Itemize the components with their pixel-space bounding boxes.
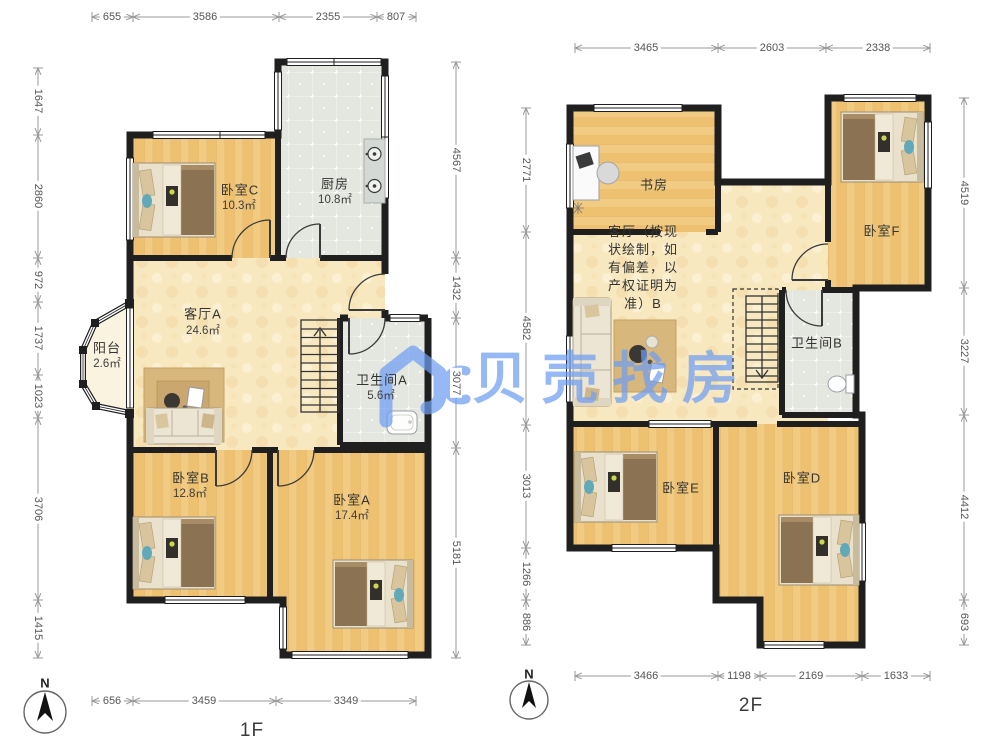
dim-label: 2338 bbox=[863, 42, 893, 54]
watermark-brand: 贝壳找房 bbox=[472, 351, 752, 407]
dim-label: 3706 bbox=[32, 494, 44, 524]
floor2-compass bbox=[510, 681, 548, 719]
room-label-bedroom-e: 卧室E bbox=[662, 478, 700, 497]
room-area-bedroom-c: 10.3㎡ bbox=[222, 197, 256, 213]
dim-label: 4582 bbox=[520, 313, 532, 343]
dim-label: 3586 bbox=[190, 11, 220, 23]
dim-label: 3349 bbox=[331, 695, 361, 707]
dim-label: 4567 bbox=[450, 145, 462, 175]
dim-label: 1432 bbox=[450, 273, 462, 303]
dim-label: 3077 bbox=[450, 368, 462, 398]
dim-label: 693 bbox=[958, 610, 970, 634]
room-label-bedroom-f: 卧室F bbox=[864, 221, 901, 240]
dim-label: 3013 bbox=[520, 471, 532, 501]
room-label-bedroom-c: 卧室C bbox=[221, 180, 259, 199]
bedroom-b-bed bbox=[133, 517, 215, 589]
kitchen-stove bbox=[364, 139, 385, 203]
dim-label: 807 bbox=[384, 11, 408, 23]
room-area-bedroom-b: 12.8㎡ bbox=[173, 485, 207, 501]
living-a-sofa bbox=[144, 368, 224, 444]
room-label-living-a: 客厅A bbox=[184, 304, 222, 323]
room-label-bedroom-a: 卧室A bbox=[333, 490, 371, 509]
bedroom-f-bed bbox=[841, 112, 923, 182]
dim-label: 1633 bbox=[881, 670, 911, 682]
floorplan-page: 贝壳找房 卧室C 10.3㎡ 厨房 10.8㎡ 客厅A 24.6㎡ 阳台 2.6… bbox=[0, 0, 1000, 750]
bedroom-c-bed bbox=[133, 163, 215, 237]
dim-label: 1023 bbox=[32, 381, 44, 411]
room-area-living-a: 24.6㎡ bbox=[186, 322, 220, 338]
room-label-study: 书房 bbox=[640, 175, 668, 194]
floor1-compass bbox=[24, 691, 66, 733]
room-label-living-b: 客厅（按现状绘制，如有偏差，以产权证明为准）B bbox=[602, 223, 684, 313]
room-area-kitchen: 10.8㎡ bbox=[318, 191, 352, 207]
dim-label: 4519 bbox=[958, 178, 970, 208]
room-label-balcony: 阳台 bbox=[93, 338, 121, 357]
room-label-bath-b: 卫生间B bbox=[791, 333, 843, 352]
room-area-balcony: 2.6㎡ bbox=[93, 355, 121, 371]
floor1-compass-north-label: N bbox=[40, 676, 49, 691]
floor1-label: 1F bbox=[240, 720, 264, 742]
dim-label: 1415 bbox=[32, 613, 44, 643]
dim-label: 3465 bbox=[631, 42, 661, 54]
dim-label: 3459 bbox=[189, 695, 219, 707]
dim-label: 886 bbox=[520, 610, 532, 634]
bedroom-a-bed bbox=[333, 560, 413, 628]
room-label-bedroom-b: 卧室B bbox=[172, 468, 210, 487]
dim-label: 1266 bbox=[520, 559, 532, 589]
dim-label: 2860 bbox=[32, 181, 44, 211]
dim-label: 655 bbox=[100, 11, 124, 23]
dim-label: 3227 bbox=[958, 336, 970, 366]
room-area-bedroom-a: 17.4㎡ bbox=[335, 507, 369, 523]
bedroom-e-bed bbox=[575, 452, 657, 522]
dim-label: 3466 bbox=[631, 670, 661, 682]
room-label-bath-a: 卫生间A bbox=[356, 370, 408, 389]
dim-label: 5181 bbox=[450, 538, 462, 568]
dim-label: 2771 bbox=[520, 155, 532, 185]
bath-b-toilet bbox=[828, 375, 854, 393]
room-area-bath-a: 5.6㎡ bbox=[367, 387, 395, 403]
dim-label: 656 bbox=[100, 695, 124, 707]
room-label-bedroom-d: 卧室D bbox=[783, 468, 821, 487]
bedroom-d-bed bbox=[779, 515, 859, 585]
dim-label: 1737 bbox=[32, 323, 44, 353]
dim-label: 2355 bbox=[313, 11, 343, 23]
floor2-label: 2F bbox=[739, 695, 763, 717]
dim-label: 4412 bbox=[958, 492, 970, 522]
dim-label: 2603 bbox=[757, 42, 787, 54]
dim-label: 2169 bbox=[796, 670, 826, 682]
dim-label: 1198 bbox=[724, 670, 754, 682]
room-label-kitchen: 厨房 bbox=[321, 174, 349, 193]
dim-label: 972 bbox=[32, 268, 44, 292]
floor2-compass-north-label: N bbox=[524, 667, 533, 682]
dim-label: 1647 bbox=[32, 86, 44, 116]
